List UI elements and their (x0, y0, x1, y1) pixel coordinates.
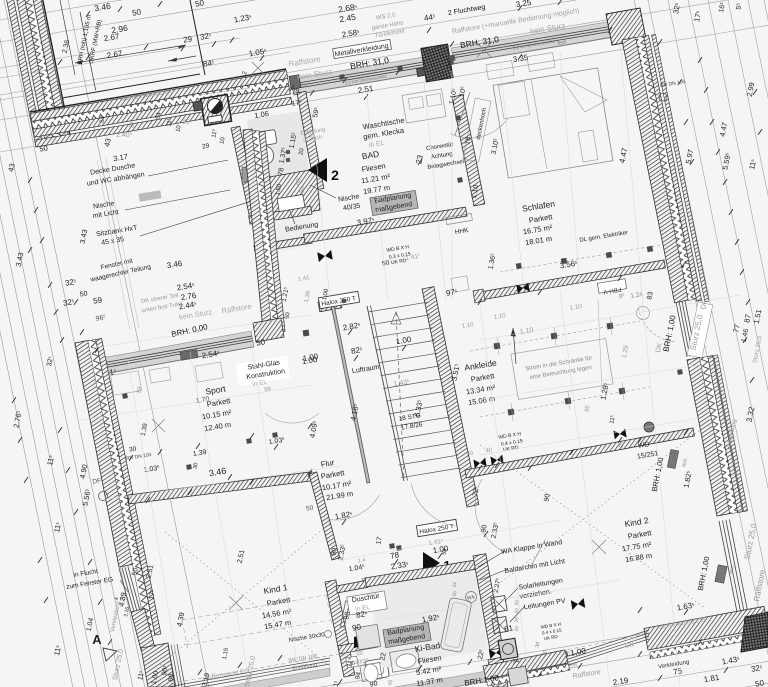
svg-text:DF: DF (92, 477, 102, 485)
svg-text:77: 77 (731, 324, 741, 334)
svg-text:87: 87 (742, 314, 752, 324)
svg-text:43: 43 (102, 138, 112, 148)
svg-text:43: 43 (6, 163, 16, 173)
svg-text:1.4: 1.4 (358, 557, 367, 564)
svg-text:30: 30 (192, 462, 199, 469)
svg-text:50: 50 (39, 143, 49, 153)
svg-text:25: 25 (183, 120, 190, 126)
svg-text:2: 2 (331, 167, 339, 183)
svg-text:00: 00 (356, 651, 363, 658)
svg-text:50: 50 (194, 0, 205, 9)
svg-text:A: A (92, 632, 102, 647)
svg-text:20: 20 (618, 441, 625, 448)
svg-text:50: 50 (79, 290, 88, 298)
svg-text:45: 45 (387, 679, 394, 686)
